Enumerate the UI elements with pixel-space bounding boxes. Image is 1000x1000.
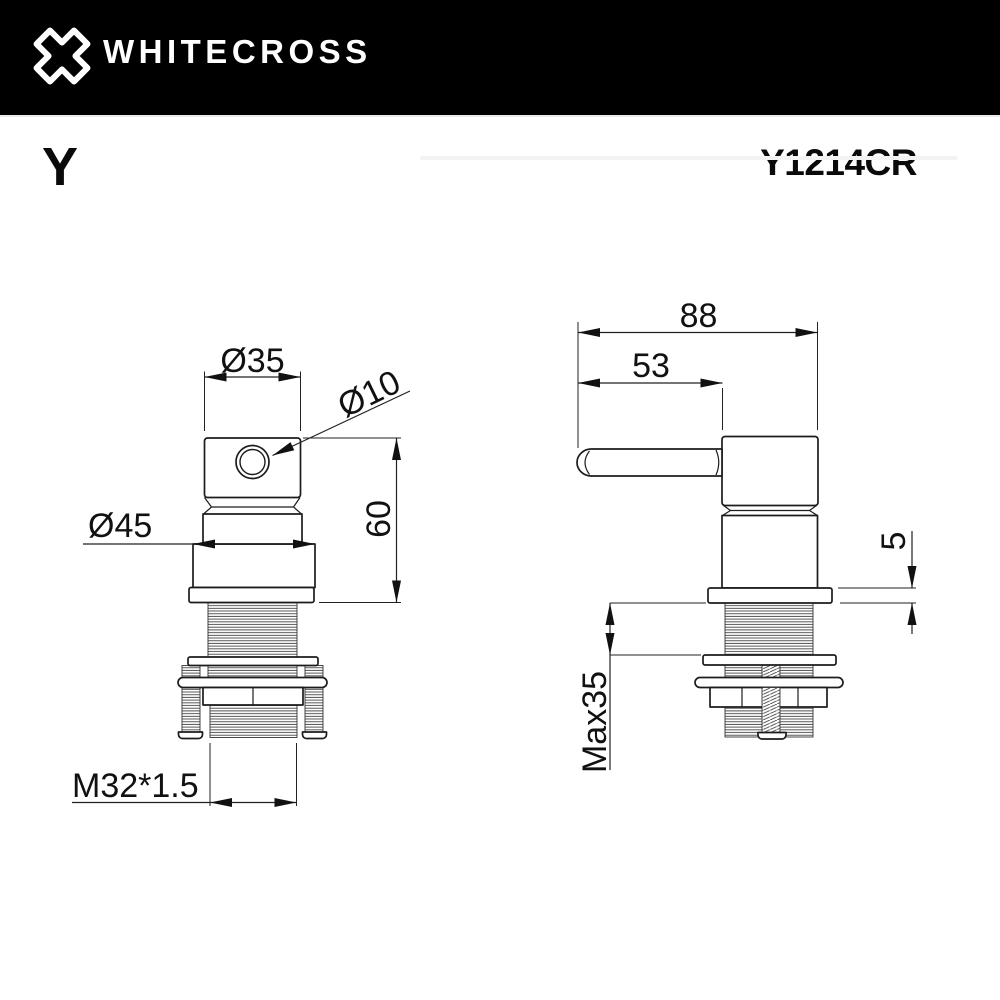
side-view-drawing: 88 53 5: [576, 297, 917, 773]
dim-label-handle-length: 53: [632, 347, 670, 385]
dim-flange-thickness: 5: [838, 531, 917, 634]
dim-label-total-length: 88: [680, 297, 718, 335]
dim-total-length: 88: [578, 297, 818, 448]
dim-handle-length: 53: [578, 347, 723, 430]
dim-label-top-diameter: Ø35: [220, 342, 284, 380]
dim-label-height: 60: [360, 500, 398, 538]
dim-label-collar-diameter: Ø45: [88, 507, 152, 545]
dim-height: 60: [303, 438, 401, 603]
dim-thread: M32*1.5: [72, 743, 297, 807]
spec-sheet-page: WHITECROSS Y Y1214CR: [0, 0, 1000, 1000]
dim-label-max-mounting: Max35: [576, 671, 614, 773]
front-view-body: [178, 438, 327, 739]
dim-label-flange-thickness: 5: [875, 532, 913, 551]
dim-label-hole-diameter: Ø10: [332, 363, 406, 425]
dim-label-thread: M32*1.5: [72, 767, 199, 805]
front-view-drawing: Ø35 Ø10 Ø45 60: [72, 342, 410, 807]
technical-drawing: Ø35 Ø10 Ø45 60: [0, 0, 1000, 1000]
side-view-body: [577, 437, 843, 740]
dim-max-mounting: Max35: [576, 603, 706, 773]
dim-top-diameter: Ø35: [205, 342, 301, 431]
